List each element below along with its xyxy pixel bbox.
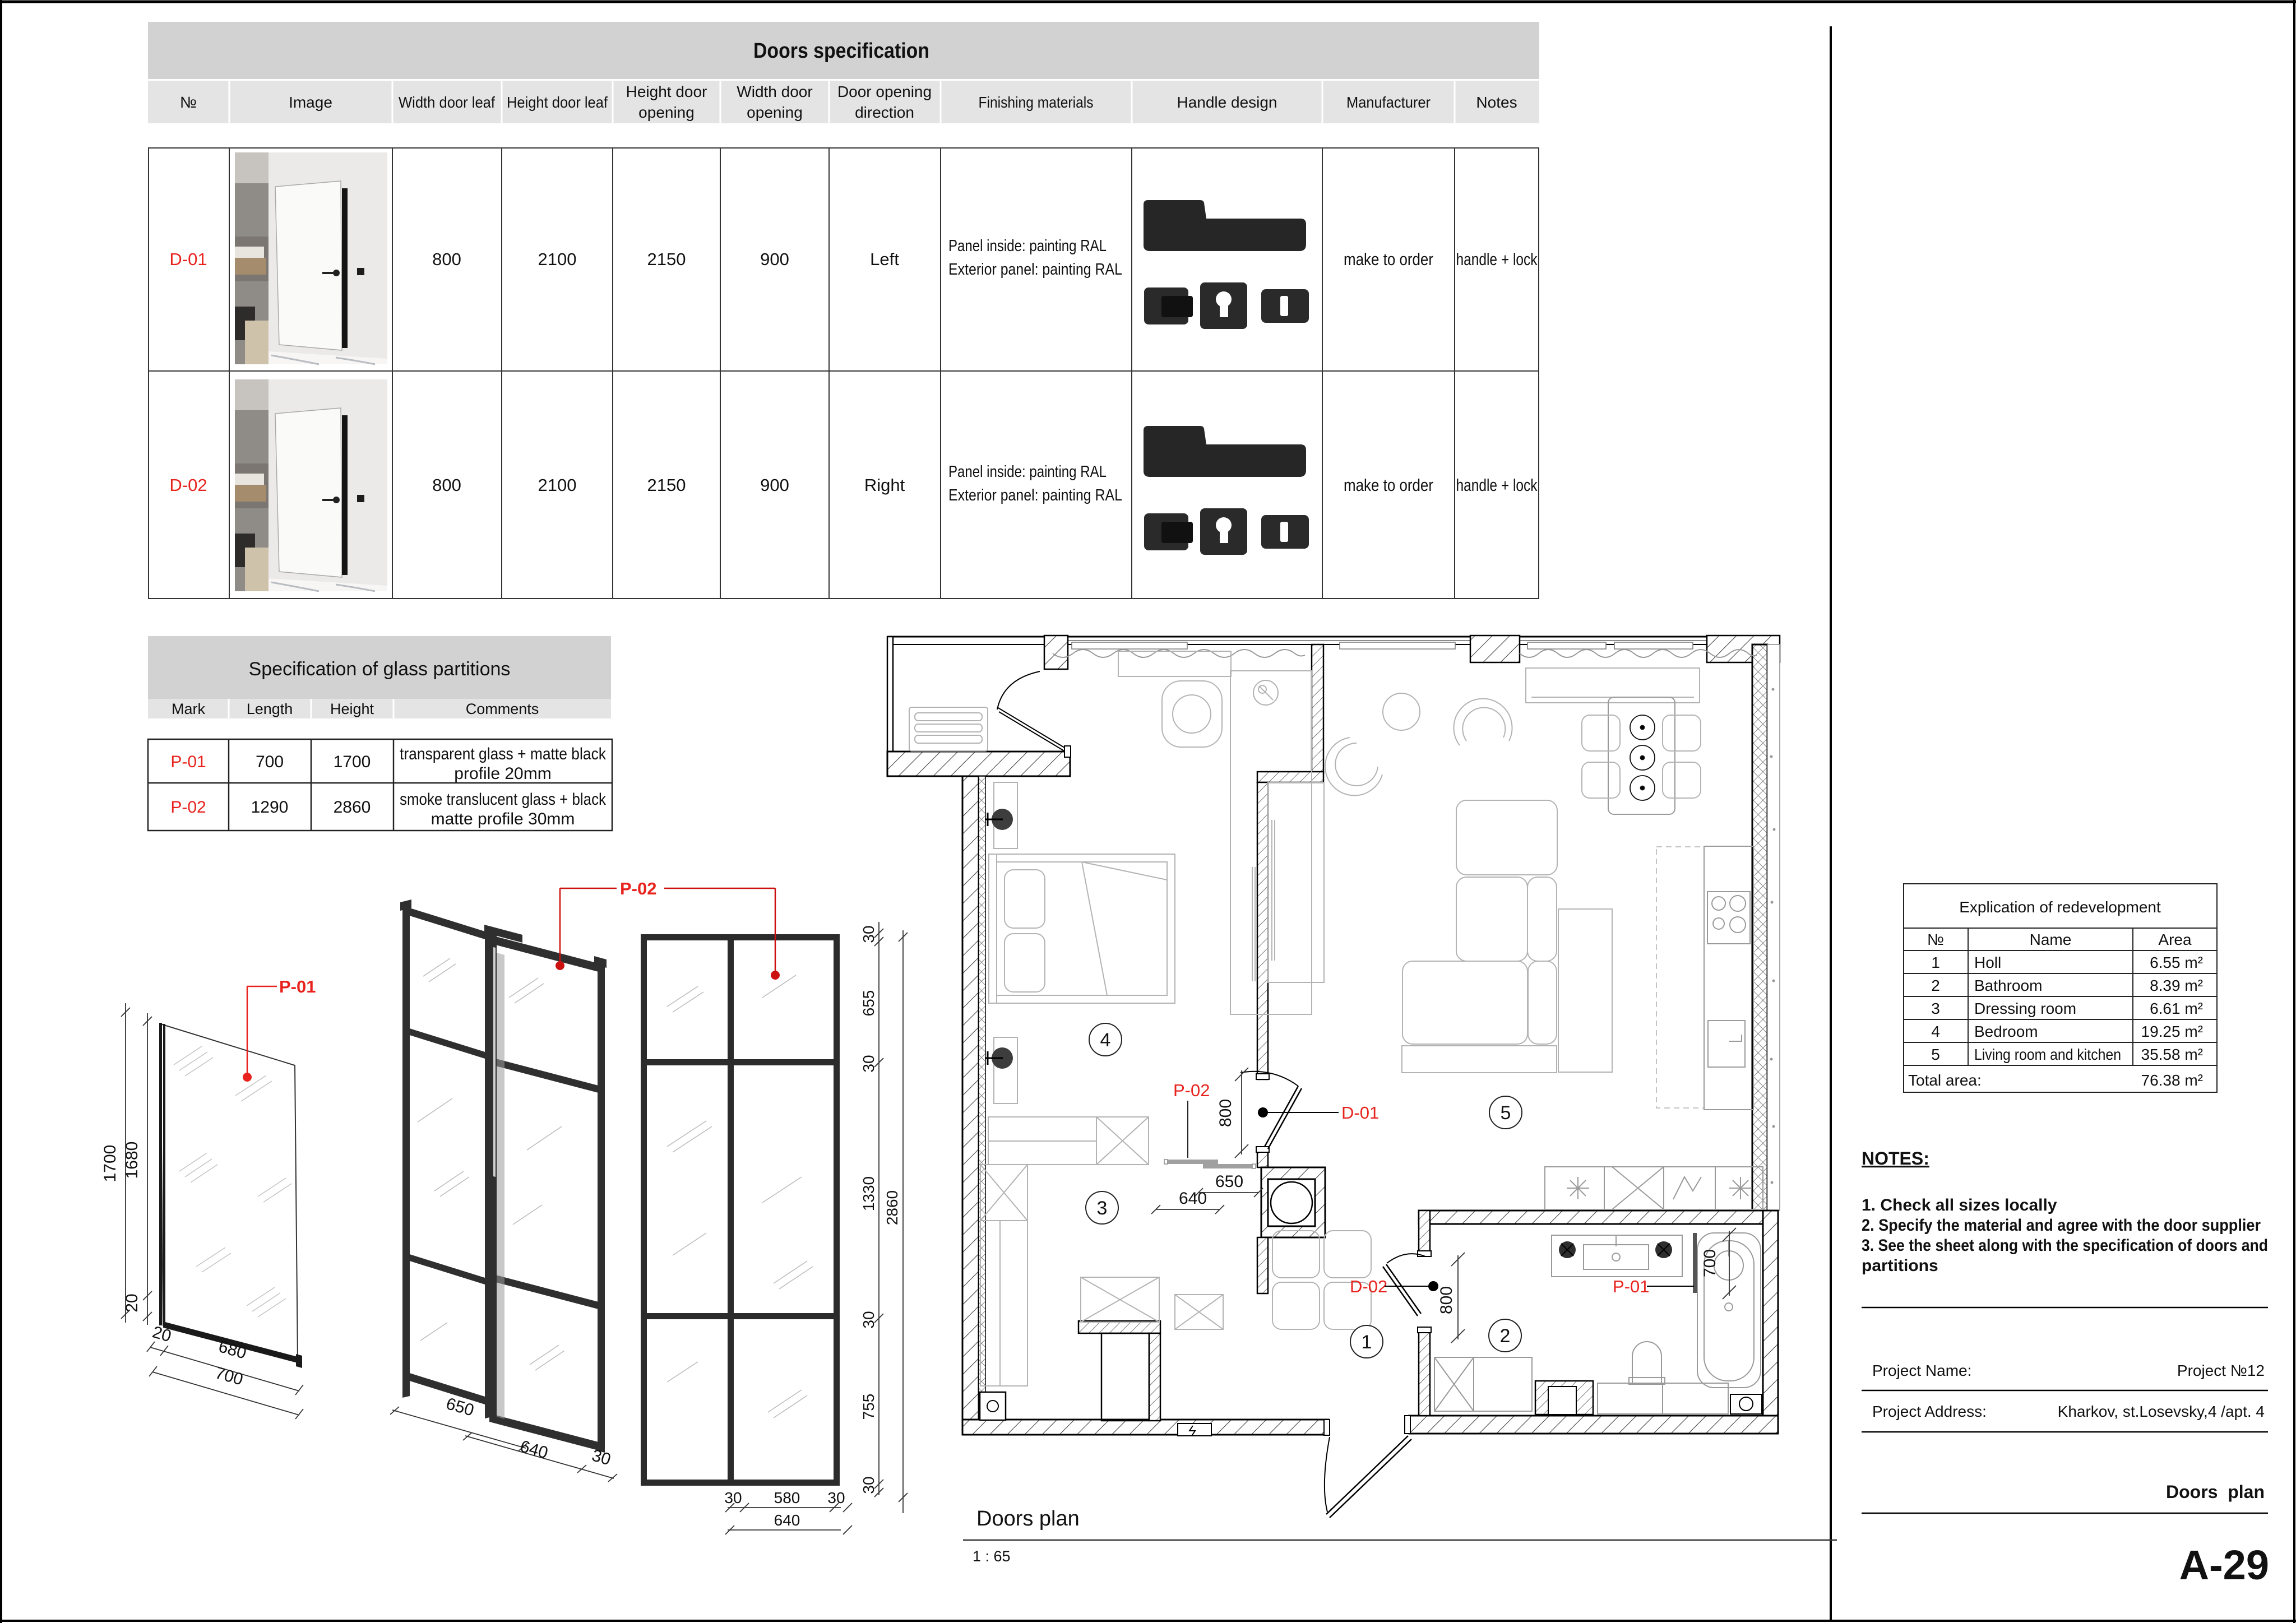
svg-text:2150: 2150 — [647, 249, 686, 269]
svg-text:30: 30 — [860, 1311, 877, 1328]
svg-text:P-02: P-02 — [170, 798, 206, 817]
svg-text:1: 1 — [1362, 1332, 1372, 1353]
svg-text:30: 30 — [724, 1489, 742, 1506]
svg-text:2100: 2100 — [538, 249, 577, 269]
svg-text:Kharkov, st.Losevsky,4 /apt. 4: Kharkov, st.Losevsky,4 /apt. 4 — [2058, 1403, 2265, 1420]
svg-text:1 : 65: 1 : 65 — [973, 1548, 1011, 1565]
svg-text:30: 30 — [860, 925, 877, 943]
svg-text:1680: 1680 — [123, 1142, 141, 1179]
svg-text:D-01: D-01 — [1341, 1103, 1379, 1123]
svg-text:Area: Area — [2158, 931, 2192, 948]
svg-text:76.38 m²: 76.38 m² — [2141, 1072, 2204, 1089]
svg-text:Holl: Holl — [1974, 954, 2001, 971]
svg-text:900: 900 — [760, 249, 789, 269]
svg-text:650: 650 — [1215, 1172, 1243, 1191]
svg-text:handle + lock: handle + lock — [1456, 249, 1538, 269]
svg-text:opening: opening — [638, 104, 695, 121]
svg-text:make to order: make to order — [1344, 249, 1433, 269]
svg-text:Height door leaf: Height door leaf — [507, 94, 608, 111]
svg-text:800: 800 — [1437, 1286, 1456, 1314]
svg-text:30: 30 — [827, 1489, 845, 1506]
svg-text:3: 3 — [1931, 1000, 1940, 1017]
svg-text:№: № — [180, 94, 197, 111]
svg-text:800: 800 — [432, 475, 461, 495]
svg-text:Project Name:: Project Name: — [1872, 1362, 1971, 1379]
svg-text:Exterior panel: painting RAL: Exterior panel: painting RAL — [948, 261, 1122, 279]
svg-text:Manufacturer: Manufacturer — [1346, 94, 1431, 111]
svg-text:8.39 m²: 8.39 m² — [2150, 977, 2203, 994]
svg-text:handle + lock: handle + lock — [1456, 475, 1538, 495]
svg-text:Width door: Width door — [737, 83, 812, 100]
svg-text:580: 580 — [774, 1489, 800, 1506]
svg-text:6.61 m²: 6.61 m² — [2150, 1000, 2203, 1017]
svg-text:Height door: Height door — [626, 83, 707, 100]
svg-text:4: 4 — [1931, 1023, 1940, 1040]
svg-text:Door opening: Door opening — [837, 83, 932, 100]
svg-text:Total area:: Total area: — [1908, 1072, 1982, 1089]
svg-text:NOTES:: NOTES: — [1862, 1148, 1929, 1168]
svg-text:D-02: D-02 — [1350, 1277, 1387, 1296]
svg-text:700: 700 — [1701, 1249, 1719, 1277]
svg-text:partitions: partitions — [1862, 1256, 1938, 1275]
svg-text:P-02: P-02 — [620, 879, 656, 898]
svg-text:D-01: D-01 — [169, 249, 207, 269]
svg-text:30: 30 — [860, 1476, 877, 1494]
svg-text:3. See the sheet along with th: 3. See the sheet along with the specific… — [1862, 1236, 2268, 1255]
svg-text:19.25 m²: 19.25 m² — [2141, 1023, 2204, 1040]
svg-text:Right: Right — [864, 475, 905, 495]
svg-text:3: 3 — [1097, 1198, 1108, 1219]
svg-text:1700: 1700 — [334, 753, 371, 771]
svg-text:smoke translucent glass + blac: smoke translucent glass + black — [400, 790, 607, 809]
svg-text:Notes: Notes — [1476, 94, 1517, 111]
svg-text:P-01: P-01 — [1613, 1277, 1649, 1296]
svg-text:640: 640 — [774, 1511, 800, 1529]
svg-text:Doors specification: Doors specification — [753, 39, 929, 63]
svg-text:Explication of redevelopment: Explication of redevelopment — [1959, 898, 2161, 916]
svg-text:Name: Name — [2030, 931, 2072, 948]
svg-text:700: 700 — [256, 753, 284, 771]
svg-text:800: 800 — [432, 249, 461, 269]
svg-text:Specification of glass partiti: Specification of glass partitions — [249, 659, 511, 680]
svg-text:Panel inside: painting RAL: Panel inside: painting RAL — [948, 463, 1107, 481]
svg-text:2: 2 — [1931, 977, 1940, 994]
svg-text:35.58 m²: 35.58 m² — [2141, 1046, 2204, 1063]
svg-text:P-02: P-02 — [1173, 1081, 1210, 1100]
svg-text:profile 20mm: profile 20mm — [454, 764, 551, 783]
svg-text:D-02: D-02 — [169, 475, 207, 495]
svg-text:2. Specify the material and ag: 2. Specify the material and agree with t… — [1862, 1216, 2261, 1235]
svg-text:900: 900 — [760, 475, 789, 495]
svg-text:655: 655 — [860, 990, 877, 1017]
svg-text:Height: Height — [330, 701, 374, 717]
svg-text:Image: Image — [289, 94, 332, 111]
svg-text:755: 755 — [860, 1394, 877, 1420]
svg-text:Doors plan: Doors plan — [2166, 1482, 2265, 1502]
svg-text:Comments: Comments — [466, 701, 539, 717]
svg-text:2: 2 — [1500, 1325, 1511, 1347]
svg-text:№: № — [1927, 931, 1944, 948]
svg-text:Left: Left — [870, 249, 899, 269]
svg-text:5: 5 — [1501, 1102, 1511, 1124]
svg-text:1290: 1290 — [251, 798, 289, 817]
svg-text:Bedroom: Bedroom — [1974, 1023, 2038, 1040]
svg-text:make to order: make to order — [1344, 475, 1433, 495]
svg-text:Handle design: Handle design — [1177, 94, 1277, 111]
svg-text:1: 1 — [1931, 954, 1940, 971]
svg-text:1330: 1330 — [860, 1176, 877, 1211]
svg-text:2150: 2150 — [647, 475, 686, 495]
svg-text:800: 800 — [1216, 1099, 1235, 1127]
svg-text:Width door leaf: Width door leaf — [399, 94, 495, 111]
svg-text:P-01: P-01 — [279, 977, 316, 996]
svg-text:matte profile 30mm: matte profile 30mm — [431, 810, 575, 828]
svg-text:6.55 m²: 6.55 m² — [2150, 954, 2203, 971]
svg-text:640: 640 — [1179, 1189, 1207, 1208]
svg-text:2100: 2100 — [538, 475, 577, 495]
svg-text:2860: 2860 — [334, 798, 371, 817]
svg-text:30: 30 — [860, 1055, 877, 1072]
svg-text:Exterior panel: painting RAL: Exterior panel: painting RAL — [948, 486, 1122, 504]
svg-text:Living room and kitchen: Living room and kitchen — [1974, 1046, 2121, 1063]
svg-text:1700: 1700 — [101, 1145, 119, 1183]
svg-text:transparent glass + matte blac: transparent glass + matte black — [400, 745, 607, 763]
svg-text:Project №12: Project №12 — [2177, 1362, 2265, 1379]
svg-text:Finishing materials: Finishing materials — [979, 94, 1094, 111]
svg-text:opening: opening — [747, 104, 803, 121]
svg-text:Panel inside: painting RAL: Panel inside: painting RAL — [948, 237, 1107, 255]
svg-text:Dressing room: Dressing room — [1974, 1000, 2076, 1017]
svg-text:Doors plan: Doors plan — [976, 1507, 1080, 1531]
svg-text:Mark: Mark — [172, 701, 205, 717]
svg-text:P-01: P-01 — [170, 753, 206, 771]
svg-text:Bathroom: Bathroom — [1974, 977, 2042, 994]
svg-text:Length: Length — [247, 701, 293, 717]
svg-text:2860: 2860 — [883, 1190, 901, 1225]
svg-text:4: 4 — [1100, 1030, 1111, 1051]
svg-text:1. Check all sizes locally: 1. Check all sizes locally — [1862, 1196, 2057, 1214]
svg-text:Project Address:: Project Address: — [1872, 1403, 1987, 1420]
svg-text:A-29: A-29 — [2179, 1542, 2269, 1588]
svg-text:20: 20 — [123, 1293, 141, 1312]
svg-text:direction: direction — [855, 104, 914, 121]
svg-text:5: 5 — [1931, 1046, 1940, 1063]
